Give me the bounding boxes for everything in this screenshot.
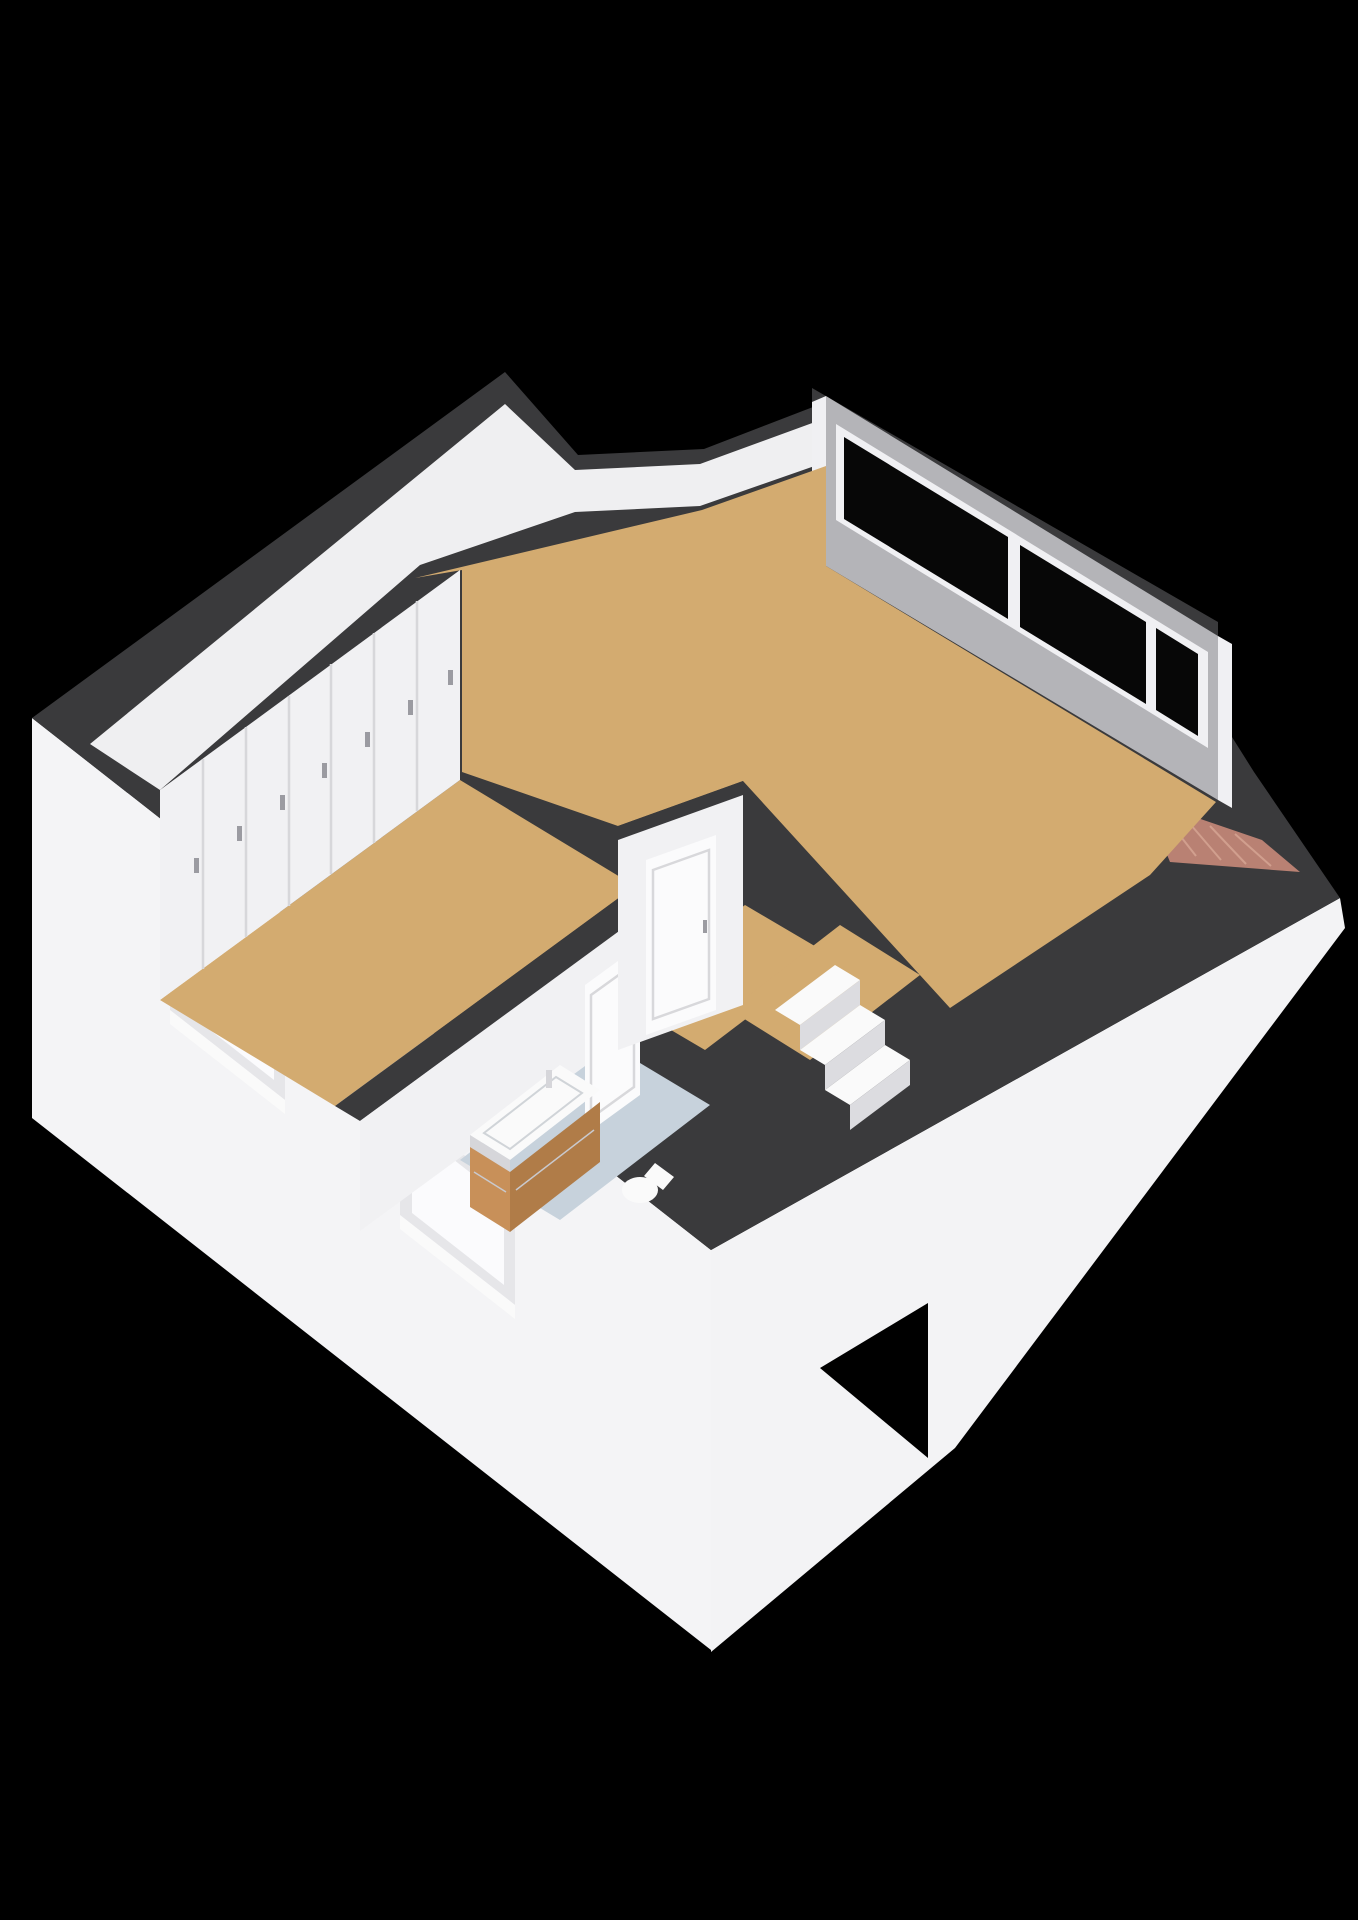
- faucet: [546, 1070, 552, 1088]
- closet-door-handle: [280, 795, 285, 810]
- closet-door-handle: [448, 670, 453, 685]
- floorplan-render: [0, 0, 1358, 1920]
- toilet-bowl: [622, 1177, 658, 1203]
- interior-door-2-handle: [703, 920, 707, 933]
- interior-door-2: [646, 835, 716, 1035]
- closet-door-handle: [365, 732, 370, 747]
- closet-door-handle: [237, 826, 242, 841]
- closet-door-handle: [194, 858, 199, 873]
- closet-door-handle: [408, 700, 413, 715]
- hallway-wall: [618, 781, 743, 1050]
- closet-door-handle: [322, 763, 327, 778]
- gable-wall-right-cap: [1218, 636, 1232, 808]
